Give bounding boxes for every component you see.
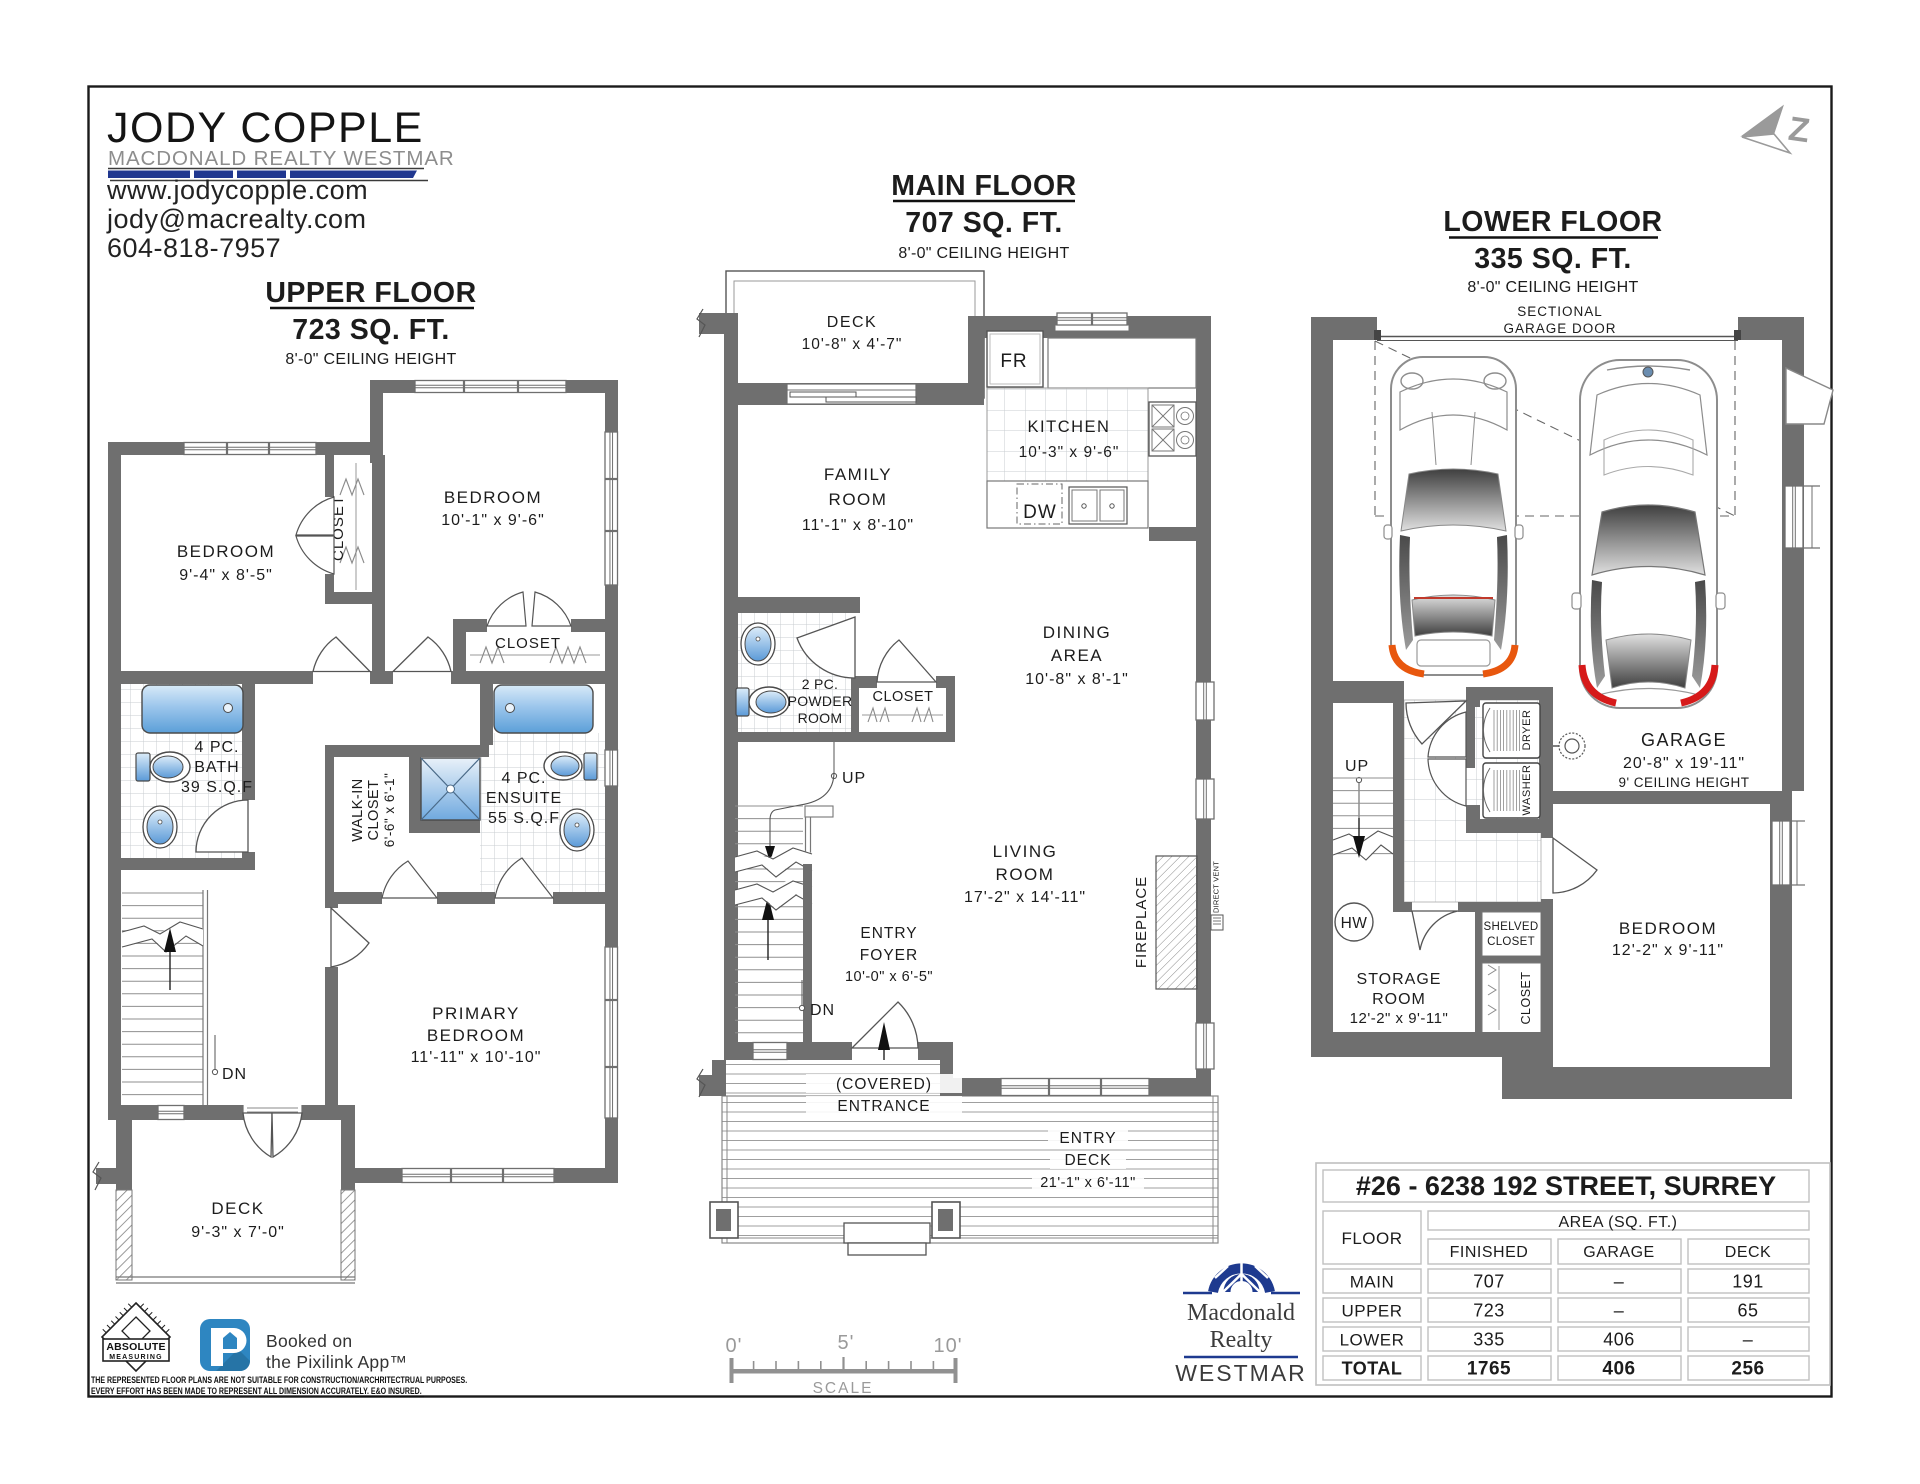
svg-text:5': 5' — [838, 1332, 855, 1354]
svg-text:LOWER FLOOR: LOWER FLOOR — [1443, 206, 1662, 238]
svg-text:ENTRANCE: ENTRANCE — [837, 1098, 930, 1115]
svg-text:UPPER FLOOR: UPPER FLOOR — [265, 277, 476, 309]
svg-text:–: – — [1614, 1272, 1625, 1292]
svg-text:EVERY EFFORT HAS BEEN MADE TO: EVERY EFFORT HAS BEEN MADE TO REPRESENT … — [91, 1386, 422, 1396]
svg-text:MAIN: MAIN — [1350, 1273, 1395, 1292]
svg-text:SECTIONAL: SECTIONAL — [1517, 304, 1603, 319]
svg-text:(COVERED): (COVERED) — [836, 1076, 932, 1093]
svg-text:256: 256 — [1731, 1359, 1764, 1380]
svg-text:jody@macrealty.com: jody@macrealty.com — [106, 204, 366, 234]
svg-text:FINISHED: FINISHED — [1450, 1244, 1529, 1261]
svg-text:55 S.Q.F: 55 S.Q.F — [488, 810, 560, 827]
svg-text:Realty: Realty — [1210, 1327, 1273, 1353]
svg-text:AREA (SQ. FT.): AREA (SQ. FT.) — [1558, 1214, 1677, 1231]
svg-text:#26 - 6238 192 STREET, SURREY: #26 - 6238 192 STREET, SURREY — [1356, 1171, 1776, 1201]
svg-text:FAMILY: FAMILY — [824, 465, 892, 484]
svg-text:WESTMAR: WESTMAR — [1175, 1360, 1307, 1386]
svg-text:6'-6" x 6'-1": 6'-6" x 6'-1" — [382, 773, 397, 848]
svg-text:FIREPLACE: FIREPLACE — [1133, 876, 1150, 968]
svg-text:707 SQ. FT.: 707 SQ. FT. — [905, 207, 1063, 239]
svg-text:4 PC.: 4 PC. — [501, 770, 546, 787]
svg-text:8'-0" CEILING HEIGHT: 8'-0" CEILING HEIGHT — [898, 245, 1069, 262]
svg-text:CLOSET: CLOSET — [366, 779, 382, 840]
svg-text:THE REPRESENTED FLOOR PLANS AR: THE REPRESENTED FLOOR PLANS ARE NOT SUIT… — [91, 1375, 467, 1385]
svg-text:GARAGE DOOR: GARAGE DOOR — [1503, 321, 1616, 336]
svg-text:POWDER: POWDER — [788, 693, 853, 709]
svg-text:LIVING: LIVING — [993, 842, 1058, 861]
svg-text:ROOM: ROOM — [1372, 991, 1426, 1008]
svg-text:DECK: DECK — [827, 314, 877, 331]
svg-text:707: 707 — [1473, 1272, 1505, 1292]
svg-text:21'-1" x 6'-11": 21'-1" x 6'-11" — [1040, 1175, 1136, 1191]
svg-text:335: 335 — [1473, 1330, 1505, 1350]
svg-text:AREA: AREA — [1051, 646, 1103, 665]
svg-text:10'-0" x 6'-5": 10'-0" x 6'-5" — [845, 969, 933, 985]
svg-text:–: – — [1743, 1330, 1754, 1350]
svg-text:DINING: DINING — [1043, 623, 1112, 642]
svg-text:10': 10' — [933, 1335, 962, 1357]
svg-text:10'-3" x 9'-6": 10'-3" x 9'-6" — [1019, 444, 1120, 461]
svg-text:17'-2" x 14'-11": 17'-2" x 14'-11" — [964, 889, 1086, 906]
svg-text:ABSOLUTE: ABSOLUTE — [106, 1341, 165, 1353]
svg-text:–: – — [1614, 1301, 1625, 1321]
svg-text:CLOSET: CLOSET — [872, 689, 933, 705]
svg-text:8'-0" CEILING HEIGHT: 8'-0" CEILING HEIGHT — [1467, 279, 1638, 296]
svg-text:604-818-7957: 604-818-7957 — [107, 233, 281, 263]
svg-text:FLOOR: FLOOR — [1341, 1229, 1402, 1248]
svg-text:BATH: BATH — [194, 759, 239, 776]
svg-text:DECK: DECK — [1725, 1244, 1771, 1261]
svg-text:SCALE: SCALE — [813, 1380, 874, 1397]
svg-text:MEASURING: MEASURING — [109, 1354, 163, 1361]
svg-text:GARAGE: GARAGE — [1583, 1244, 1654, 1261]
svg-text:STORAGE: STORAGE — [1357, 971, 1442, 988]
svg-text:12'-2" x 9'-11": 12'-2" x 9'-11" — [1612, 942, 1724, 959]
svg-text:Booked on: Booked on — [266, 1331, 352, 1351]
svg-text:335 SQ. FT.: 335 SQ. FT. — [1474, 243, 1632, 275]
svg-text:406: 406 — [1602, 1359, 1635, 1380]
svg-text:WALK-IN: WALK-IN — [350, 778, 366, 841]
svg-text:www.jodycopple.com: www.jodycopple.com — [106, 175, 368, 205]
svg-text:CLOSET: CLOSET — [495, 635, 561, 652]
svg-text:DIRECT VENT: DIRECT VENT — [1212, 861, 1221, 913]
svg-text:FOYER: FOYER — [860, 947, 918, 964]
svg-text:65: 65 — [1737, 1301, 1758, 1321]
svg-text:DRYER: DRYER — [1521, 710, 1533, 751]
svg-text:9' CEILING HEIGHT: 9' CEILING HEIGHT — [1618, 775, 1749, 790]
svg-text:4 PC.: 4 PC. — [194, 739, 239, 756]
svg-text:1765: 1765 — [1467, 1359, 1511, 1380]
svg-text:DN: DN — [810, 1002, 835, 1019]
svg-text:10'-1" x 9'-6": 10'-1" x 9'-6" — [441, 512, 545, 529]
svg-text:UP: UP — [1345, 758, 1369, 775]
svg-text:9'-3" x 7'-0": 9'-3" x 7'-0" — [191, 1224, 285, 1241]
svg-text:20'-8" x 19'-11": 20'-8" x 19'-11" — [1623, 755, 1745, 772]
svg-text:BEDROOM: BEDROOM — [427, 1026, 525, 1045]
svg-text:10'-8" x 8'-1": 10'-8" x 8'-1" — [1025, 671, 1129, 688]
svg-text:39 S.Q.F: 39 S.Q.F — [181, 779, 253, 796]
svg-text:ROOM: ROOM — [829, 490, 888, 509]
svg-text:KITCHEN: KITCHEN — [1028, 418, 1111, 436]
svg-text:CLOSET: CLOSET — [1487, 936, 1535, 948]
svg-text:10'-8" x 4'-7": 10'-8" x 4'-7" — [802, 336, 903, 353]
svg-text:HW: HW — [1341, 915, 1368, 932]
svg-text:PRIMARY: PRIMARY — [432, 1004, 520, 1023]
svg-text:UPPER: UPPER — [1341, 1302, 1402, 1321]
svg-text:ENSUITE: ENSUITE — [486, 790, 562, 807]
svg-text:UP: UP — [842, 770, 866, 787]
svg-text:0': 0' — [726, 1335, 743, 1357]
svg-text:JODY COPPLE: JODY COPPLE — [107, 104, 424, 152]
svg-text:MAIN FLOOR: MAIN FLOOR — [891, 170, 1076, 202]
svg-text:GARAGE: GARAGE — [1641, 730, 1727, 750]
svg-text:BEDROOM: BEDROOM — [177, 542, 275, 561]
svg-text:BEDROOM: BEDROOM — [1619, 919, 1717, 938]
svg-text:723 SQ. FT.: 723 SQ. FT. — [292, 314, 450, 346]
svg-text:MACDONALD REALTY WESTMAR: MACDONALD REALTY WESTMAR — [108, 147, 455, 170]
svg-text:9'-4" x 8'-5": 9'-4" x 8'-5" — [179, 567, 273, 584]
svg-text:the Pixilink App™: the Pixilink App™ — [266, 1352, 407, 1372]
svg-text:ROOM: ROOM — [996, 865, 1055, 884]
svg-text:406: 406 — [1603, 1330, 1635, 1350]
svg-text:2 PC.: 2 PC. — [802, 676, 839, 692]
svg-text:SHELVED: SHELVED — [1484, 921, 1539, 933]
svg-text:DECK: DECK — [1064, 1152, 1111, 1169]
svg-text:191: 191 — [1732, 1272, 1764, 1292]
svg-text:8'-0" CEILING HEIGHT: 8'-0" CEILING HEIGHT — [285, 351, 456, 368]
svg-text:12'-2" x 9'-11": 12'-2" x 9'-11" — [1350, 1010, 1449, 1027]
svg-text:WASHER: WASHER — [1521, 765, 1533, 816]
svg-text:TOTAL: TOTAL — [1342, 1359, 1403, 1379]
svg-text:Macdonald: Macdonald — [1187, 1300, 1295, 1326]
svg-text:11'-1" x 8'-10": 11'-1" x 8'-10" — [802, 517, 914, 534]
svg-text:ROOM: ROOM — [798, 710, 843, 726]
svg-text:DN: DN — [222, 1066, 247, 1083]
svg-text:DECK: DECK — [211, 1199, 264, 1218]
svg-text:FR: FR — [1000, 351, 1027, 372]
svg-text:723: 723 — [1473, 1301, 1505, 1321]
svg-text:ENTRY: ENTRY — [1059, 1130, 1116, 1147]
svg-text:ENTRY: ENTRY — [860, 925, 917, 942]
svg-text:BEDROOM: BEDROOM — [444, 488, 542, 507]
svg-text:DW: DW — [1023, 502, 1057, 523]
svg-text:11'-11" x 10'-10": 11'-11" x 10'-10" — [411, 1049, 542, 1066]
svg-text:CLOSET: CLOSET — [1519, 971, 1533, 1024]
svg-text:LOWER: LOWER — [1340, 1331, 1405, 1350]
